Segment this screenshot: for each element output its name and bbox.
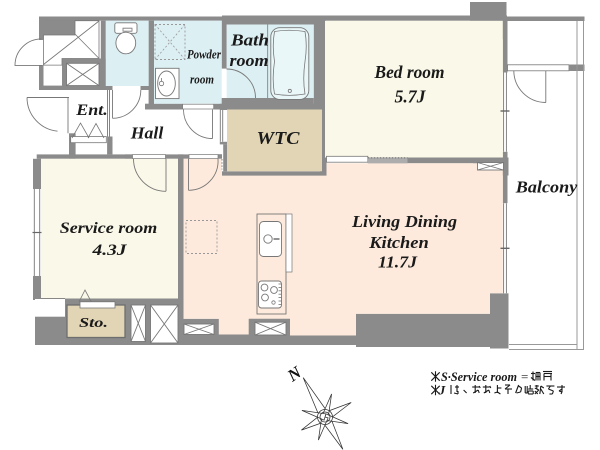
svg-text:S·Service room: S·Service room [441,369,517,384]
svg-text:4.3J: 4.3J [91,242,127,259]
svg-text:11.7J: 11.7J [378,253,418,272]
svg-text:Living Dining: Living Dining [351,212,458,231]
svg-text:=: = [521,369,528,384]
svg-text:Bed room: Bed room [374,62,445,82]
svg-text:Service room: Service room [60,220,158,237]
svg-text:J: J [438,383,446,398]
svg-text:WTC: WTC [257,128,300,148]
svg-text:room: room [230,51,269,70]
svg-text:Balcony: Balcony [515,178,578,197]
svg-text:Hall: Hall [130,124,164,143]
svg-text:5.7J: 5.7J [395,87,427,107]
svg-text:Kitchen: Kitchen [368,233,429,252]
svg-text:room: room [190,72,214,87]
svg-text:Ent.: Ent. [75,102,108,119]
svg-text:Sto.: Sto. [79,316,108,331]
svg-text:Bath: Bath [230,31,269,50]
svg-text:Powder: Powder [187,47,222,62]
